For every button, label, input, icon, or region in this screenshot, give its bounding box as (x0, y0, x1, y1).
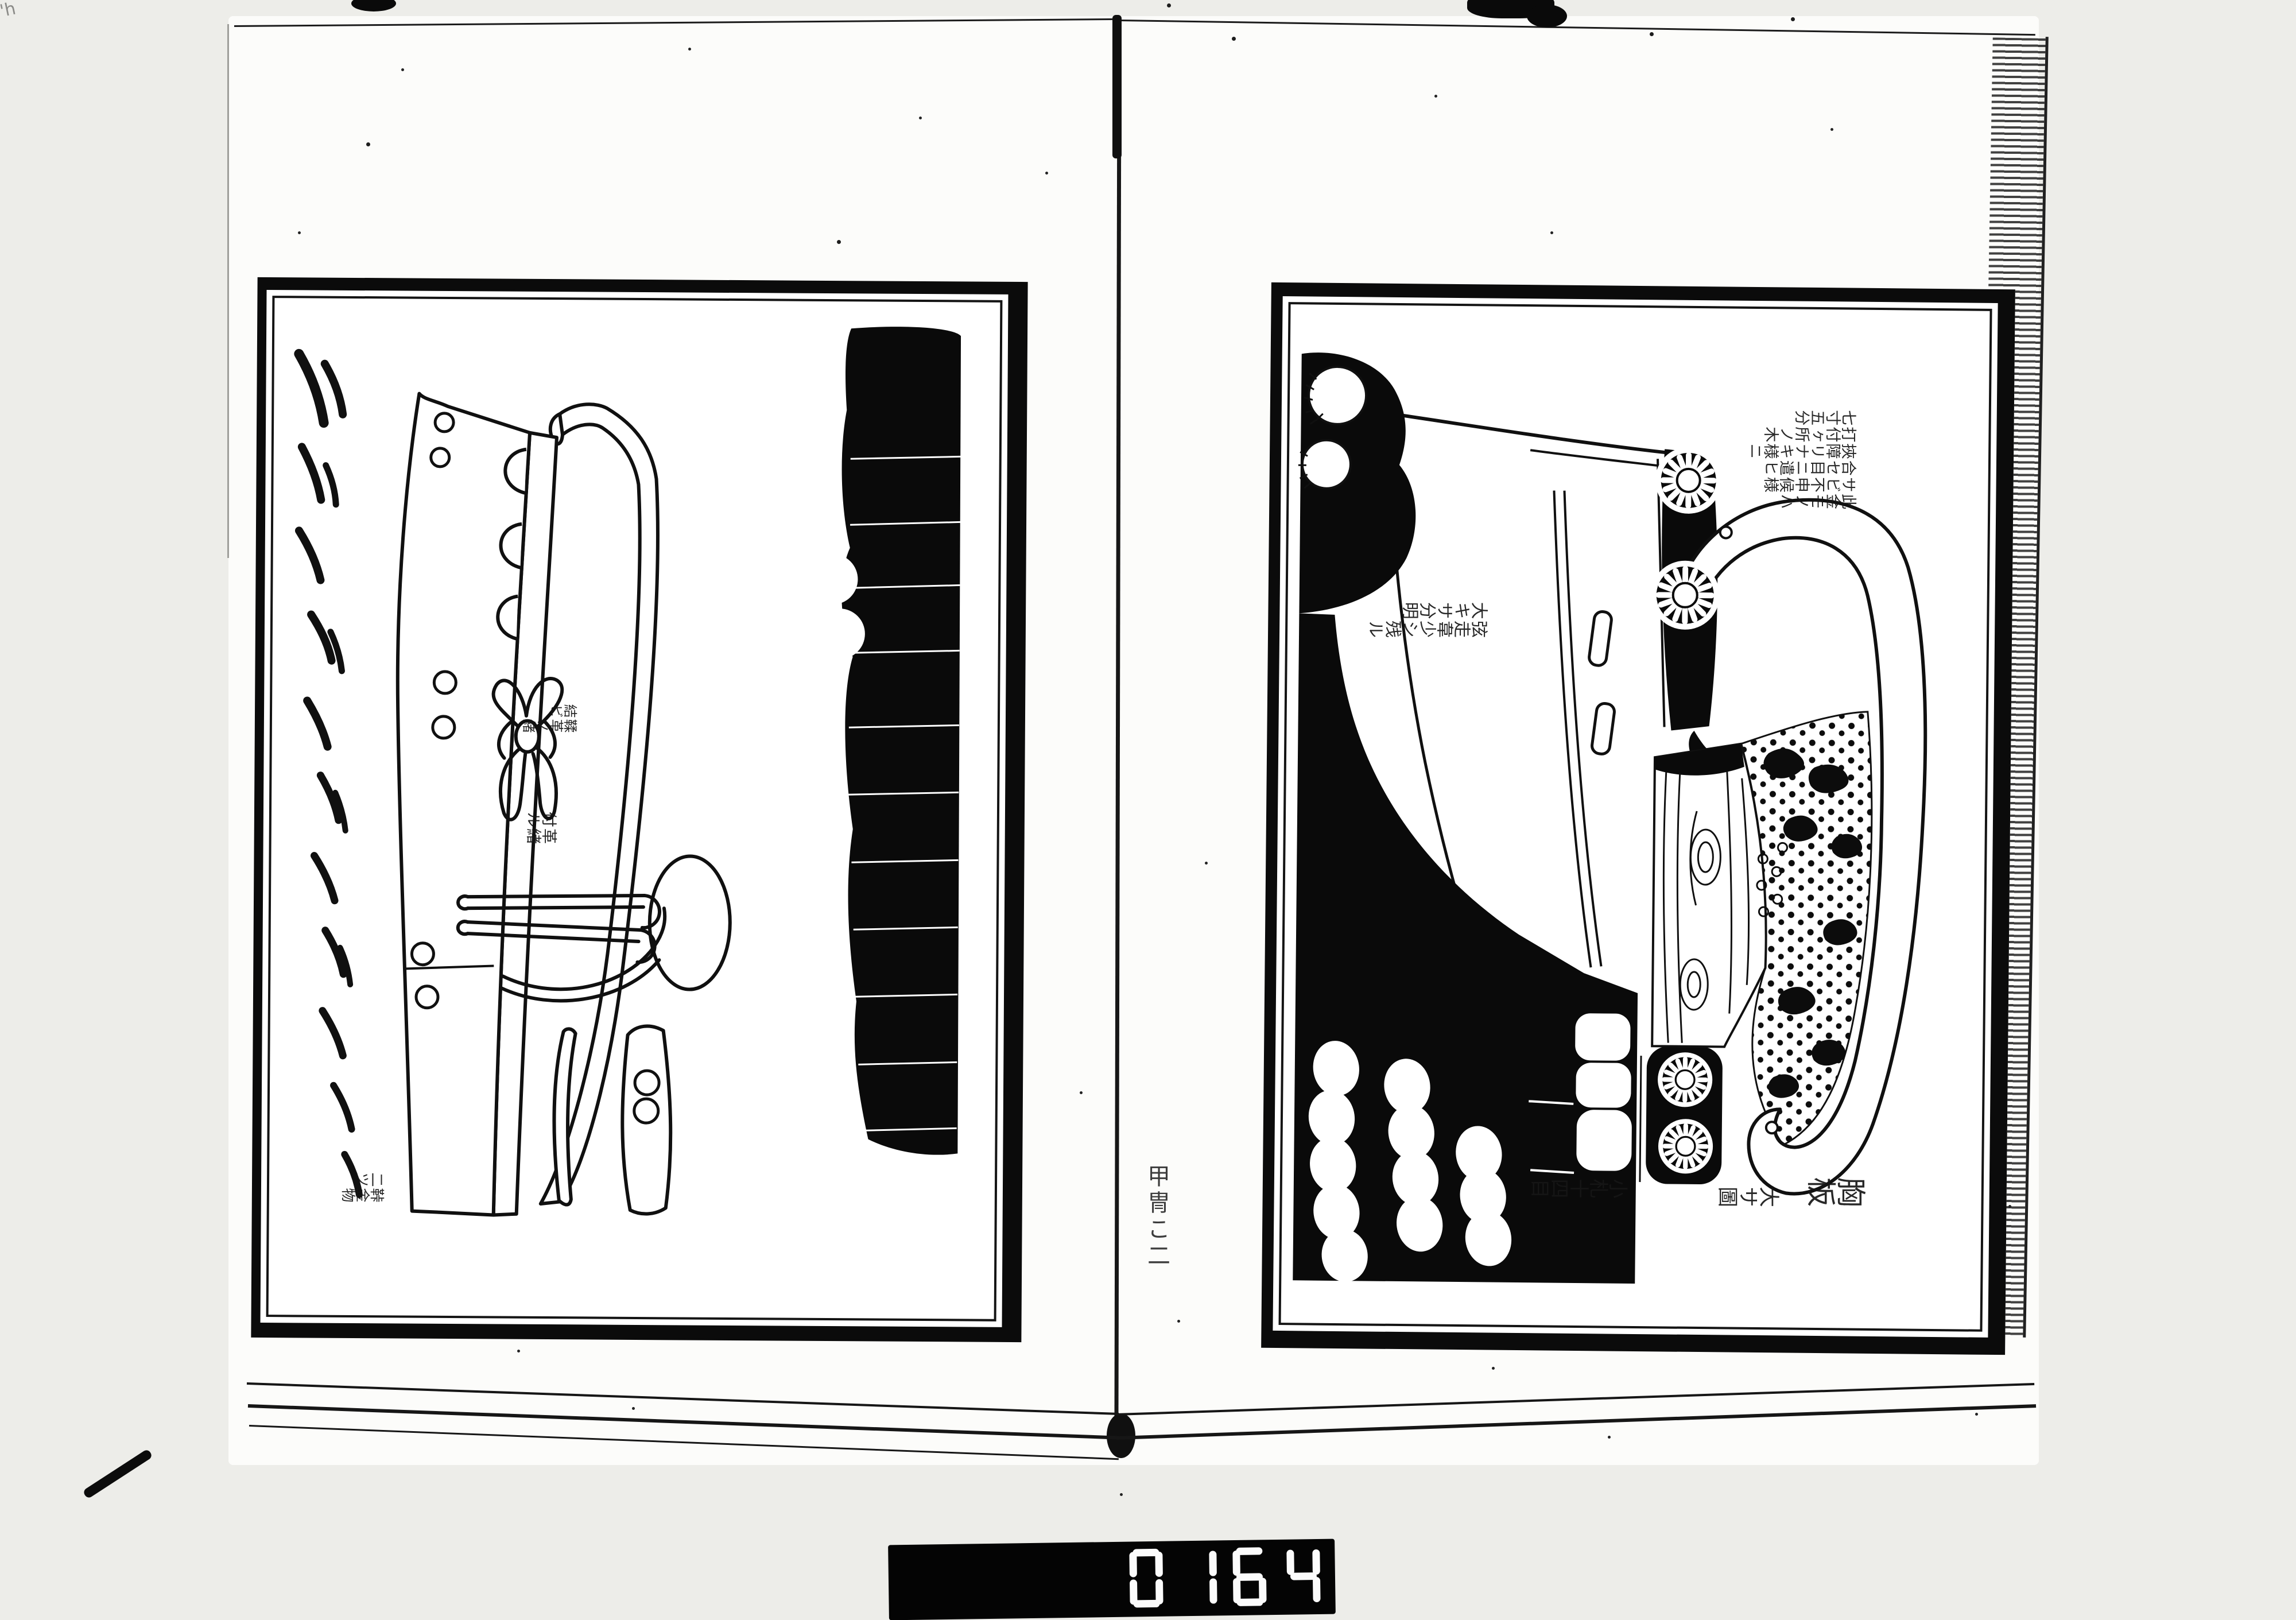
annotation-line: 挾障リナキ様ニ (1713, 441, 1857, 458)
annotation-line: 此金モノハ (1713, 491, 1857, 508)
annotation-side-note: 弦走韋少シ残ル 大キサ分明 (1370, 590, 1488, 636)
book-left-edge (227, 24, 229, 558)
lace-hole (412, 943, 433, 965)
page-gutter-top (1112, 15, 1122, 158)
label-line: 二ツ (329, 1171, 385, 1186)
annotation-line: 打付ヶ所ノ木 (1713, 424, 1857, 441)
label-line: 鞐金物 (329, 1186, 385, 1202)
spare-parts (554, 1026, 672, 1214)
strap-hole-bottom (1766, 1122, 1778, 1133)
caption-sub: 大サ圖 (1711, 1182, 1780, 1206)
label-line: 付ル (508, 809, 557, 826)
label-line: 革緒 (508, 826, 557, 843)
label-strap: 革緒 付ル (508, 807, 557, 843)
segment-f (1129, 1552, 1137, 1577)
dust-specks-large (0, 0, 2, 2)
annotation-scales-note: 小札十四目 (1516, 1172, 1628, 1196)
counter-digit (1286, 1547, 1320, 1606)
segment-f (1232, 1551, 1240, 1576)
label-line: 結ビ (517, 701, 577, 716)
ink-slash-bottom-left (82, 1448, 153, 1499)
lace-hole (435, 413, 453, 432)
caption-sub-text: 大サ圖 (1711, 1184, 1780, 1206)
counter-digit (1129, 1549, 1163, 1608)
annotation-line: 弦走韋少シ残ル (1370, 618, 1488, 636)
film-counter (888, 1539, 1336, 1620)
lace-hole (416, 986, 438, 1008)
label-line: 鞣革ノ緒 (517, 716, 577, 731)
lace-hole (431, 448, 449, 467)
ink-blob-top-center-2 (1527, 5, 1567, 28)
segment-c (1209, 1578, 1217, 1603)
annotation-line: 小札十四目 (1516, 1175, 1628, 1196)
counter-digit (1232, 1547, 1266, 1606)
segment-b (1209, 1551, 1217, 1576)
caption-title-text: 胸板 (1798, 1172, 1867, 1204)
segment-b (1155, 1552, 1163, 1577)
lacquer-stack (804, 326, 963, 1155)
annotation-top-note: 此金モノハ サビ不申候様 合セ目ニ遣ヒ 挾障リナキ様ニ 打付ヶ所ノ木 七寸五分 (1713, 399, 1857, 508)
right-illustration (1273, 296, 1998, 1338)
segment-e (1233, 1578, 1241, 1603)
lace-hole (434, 672, 456, 693)
scale-plates (1574, 1013, 1633, 1171)
label-bow: 鞣革ノ緒 結ビ (517, 696, 577, 731)
strap-hole-top (1720, 526, 1732, 538)
annotation-line: サビ不申候様 (1713, 475, 1857, 491)
counter-digit (1183, 1548, 1217, 1607)
label-parts: 鞐金物 二ツ (329, 1167, 385, 1202)
counter-digits (888, 1539, 1335, 1545)
annotation-line: 合セ目ニ遣ヒ (1713, 458, 1857, 475)
margin-brush-strokes (294, 354, 364, 1195)
segment-c (1313, 1577, 1321, 1602)
segment-b (1312, 1549, 1320, 1575)
segment-g (1236, 1573, 1263, 1581)
annotation-line: 大キサ分明 (1370, 599, 1488, 617)
caption-title: 胸板 (1798, 1170, 1867, 1204)
gutter-note: 甲冑こ二 (1140, 1164, 1173, 1270)
armor-plate-group (394, 393, 658, 1216)
segment-g (1290, 1572, 1317, 1580)
ink-blob-top-left (351, 0, 396, 11)
pencil-mark: 'h (0, 0, 18, 21)
segment-f (1286, 1550, 1294, 1575)
segment-e (1130, 1579, 1138, 1605)
right-illustration-frame (1261, 282, 2015, 1355)
lace-hole (433, 716, 455, 738)
annotation-line: 七寸五分 (1713, 408, 1857, 424)
wood-grain-panel (1652, 743, 1768, 1047)
